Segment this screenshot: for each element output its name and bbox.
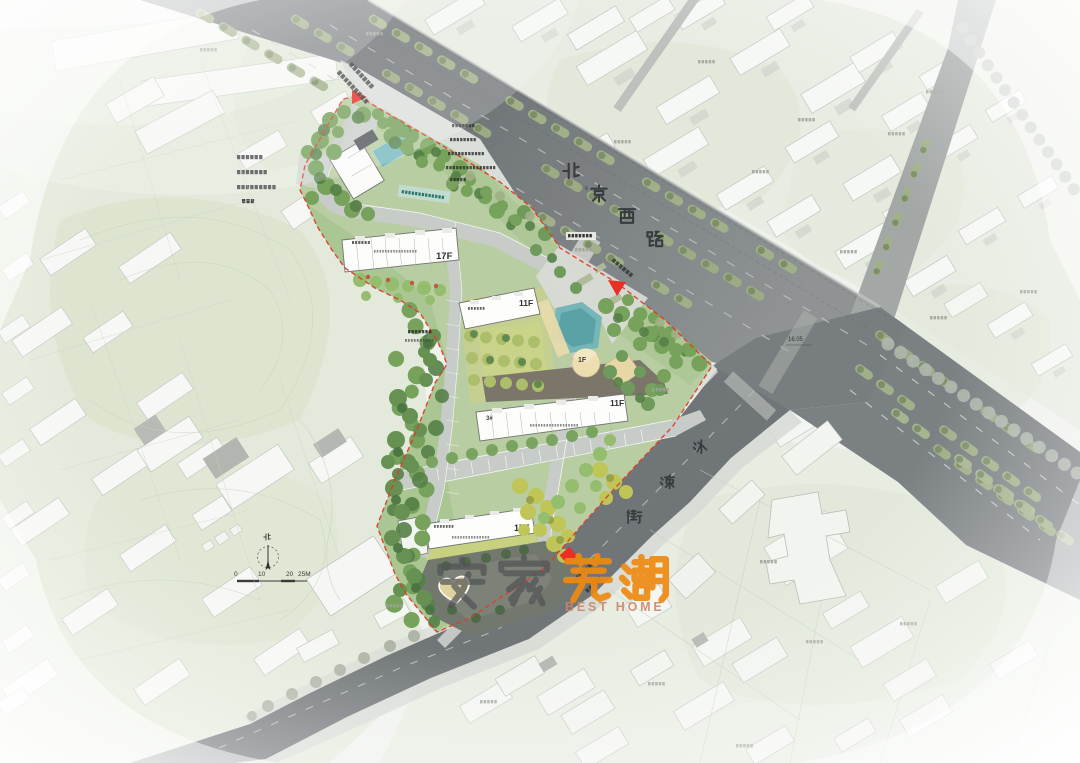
svg-text:BEST HOME: BEST HOME [565, 600, 665, 614]
